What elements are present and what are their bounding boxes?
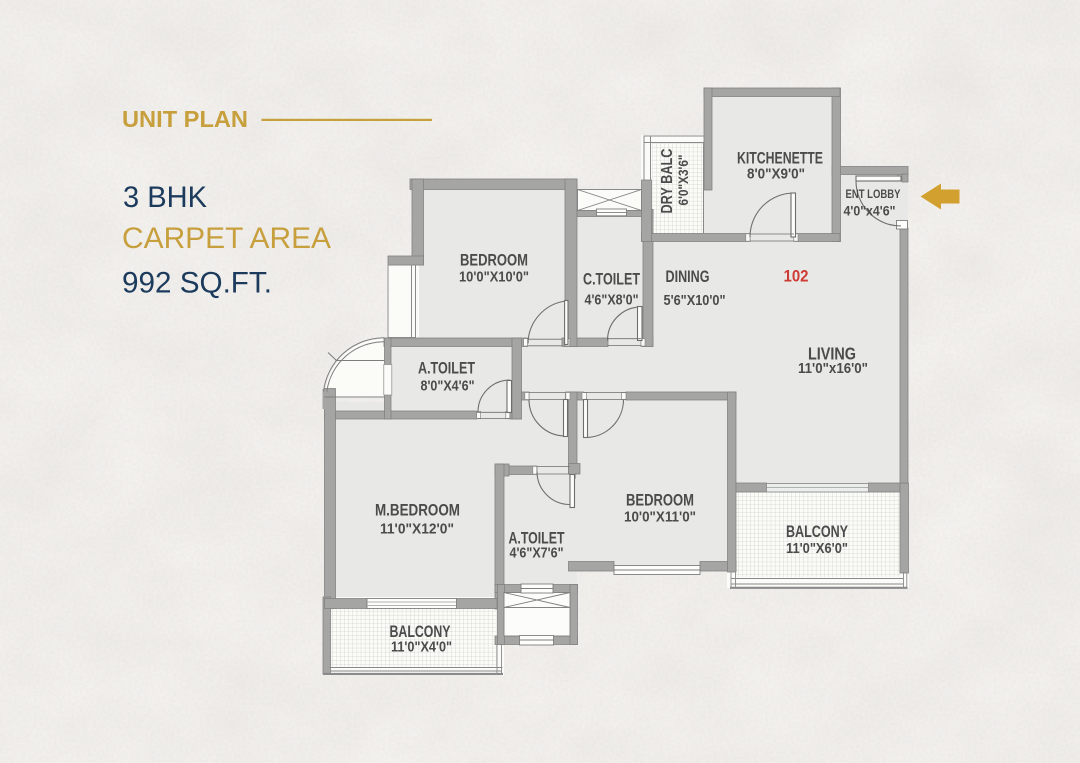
svg-text:ENT LOBBY: ENT LOBBY (846, 187, 901, 201)
svg-text:8'0"X4'6": 8'0"X4'6" (421, 378, 475, 395)
svg-text:4'0"x4'6": 4'0"x4'6" (844, 203, 896, 219)
svg-text:4'6"X8'0": 4'6"X8'0" (585, 292, 639, 309)
svg-text:BEDROOM: BEDROOM (460, 251, 528, 270)
svg-text:4'6"X7'6": 4'6"X7'6" (510, 545, 564, 562)
svg-text:102: 102 (784, 268, 809, 286)
svg-text:BALCONY: BALCONY (786, 522, 848, 541)
svg-text:A.TOILET: A.TOILET (418, 359, 475, 378)
svg-text:6'0"X3'6": 6'0"X3'6" (675, 155, 691, 206)
svg-text:11'0"X12'0": 11'0"X12'0" (380, 521, 454, 538)
svg-text:BEDROOM: BEDROOM (626, 491, 694, 510)
svg-text:10'0"X10'0": 10'0"X10'0" (459, 269, 529, 286)
svg-text:DINING: DINING (666, 267, 710, 286)
svg-text:11'0"X4'0": 11'0"X4'0" (391, 639, 452, 656)
svg-text:UNIT PLAN: UNIT PLAN (122, 106, 248, 132)
svg-text:CARPET AREA: CARPET AREA (122, 222, 331, 255)
svg-text:10'0"X11'0": 10'0"X11'0" (624, 509, 696, 526)
svg-text:C.TOILET: C.TOILET (583, 270, 640, 289)
svg-text:5'6"X10'0": 5'6"X10'0" (664, 292, 726, 309)
svg-text:M.BEDROOM: M.BEDROOM (375, 501, 460, 520)
svg-text:11'0"X6'0": 11'0"X6'0" (786, 540, 848, 557)
svg-text:3 BHK: 3 BHK (123, 181, 207, 214)
svg-text:992 SQ.FT.: 992 SQ.FT. (122, 267, 272, 300)
svg-text:8'0"X9'0": 8'0"X9'0" (747, 166, 805, 183)
svg-text:11'0"x16'0": 11'0"x16'0" (798, 360, 868, 377)
svg-text:DRY BALC: DRY BALC (659, 149, 676, 214)
